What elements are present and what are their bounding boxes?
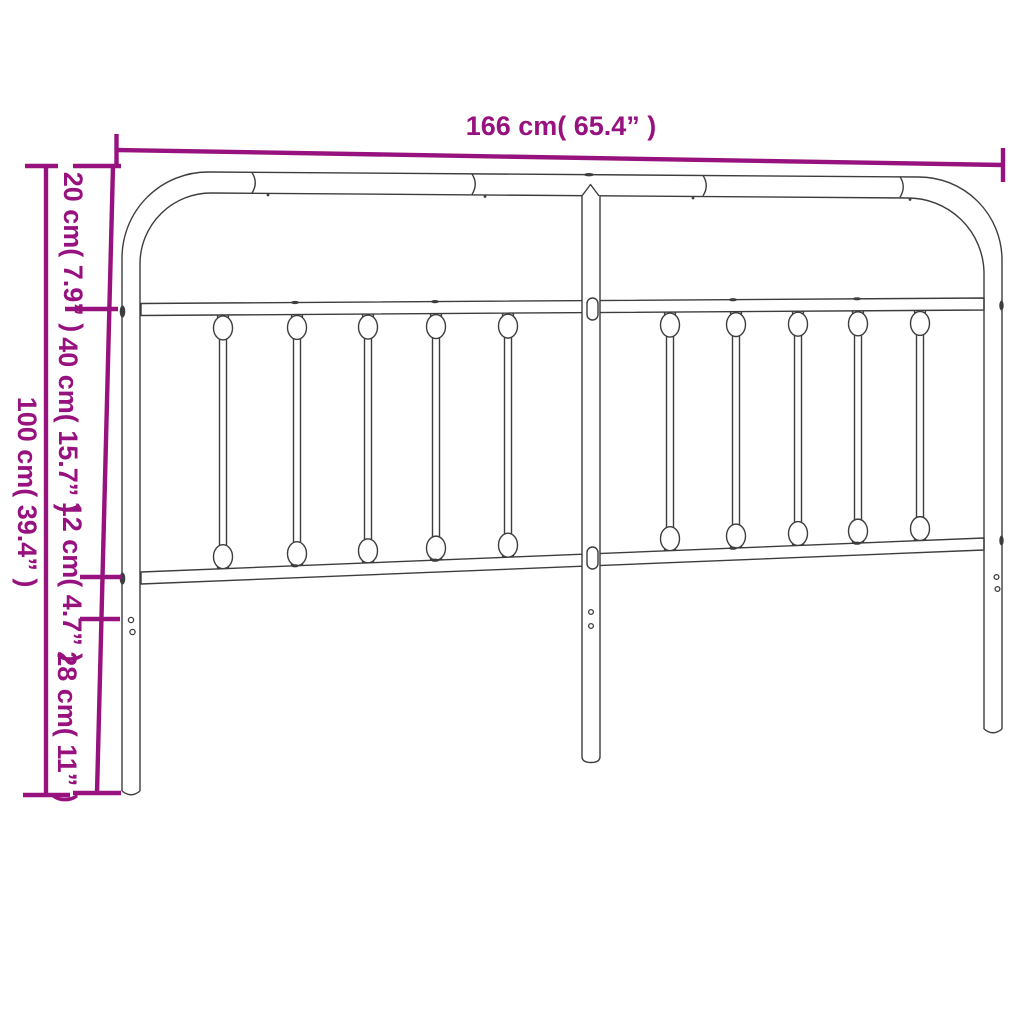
tube-joint-arc	[472, 174, 475, 194]
segment-label-40cm: 40 cm( 15.7” )	[53, 337, 83, 513]
baluster-part	[220, 338, 227, 547]
tube-dot	[484, 195, 487, 198]
baluster-part	[294, 337, 301, 543]
tube-joint-arc	[900, 177, 903, 197]
frame-bolt	[999, 536, 1003, 546]
frame-bolt	[120, 306, 126, 318]
baluster-part	[789, 312, 808, 336]
baluster-part	[427, 536, 446, 560]
baluster-part	[727, 524, 746, 548]
baluster-group	[214, 309, 930, 570]
baluster-part	[505, 336, 512, 535]
tube-joint-arc	[252, 173, 255, 193]
baluster-part	[359, 539, 378, 563]
baluster-part	[499, 533, 518, 557]
baluster-part	[911, 311, 930, 335]
baluster-part	[359, 315, 378, 339]
rail-joint-mark	[853, 542, 861, 545]
rail-joint-mark	[431, 559, 439, 562]
baluster-part	[667, 335, 674, 529]
tube-top-joint-mark	[584, 173, 594, 176]
rail-joint-mark	[291, 564, 299, 567]
tube-dot	[909, 198, 912, 201]
center-post-peak	[582, 185, 600, 197]
baluster-part	[661, 527, 680, 551]
segment-label-20cm: 20 cm( 7.9” )	[58, 172, 88, 333]
baluster-part	[733, 335, 740, 526]
baluster-part	[433, 337, 440, 539]
baluster-part	[789, 522, 808, 546]
baluster-part	[214, 545, 233, 569]
baluster-part	[288, 315, 307, 339]
tube-dot	[267, 194, 270, 197]
baluster-part	[288, 542, 307, 566]
baluster-part	[849, 519, 868, 543]
baluster-part	[849, 312, 868, 336]
frame-outer-edge	[122, 172, 1002, 791]
baluster-part	[499, 314, 518, 338]
segment-line	[97, 166, 113, 793]
screw-hole	[995, 587, 1000, 592]
post-lower-slot	[587, 547, 598, 569]
headboard-drawing	[120, 172, 1004, 795]
right-leg-bottom-cap	[984, 729, 1002, 733]
segment-height-dimension: 20 cm( 7.9” ) 40 cm( 15.7” ) 12 cm( 4.7”…	[52, 166, 122, 803]
baluster-part	[917, 333, 924, 518]
baluster-part	[795, 334, 802, 523]
frame-bolt	[999, 301, 1003, 311]
center-post	[582, 196, 600, 763]
width-label: 166 cm( 65.4” )	[466, 111, 657, 141]
baluster-part	[214, 316, 233, 340]
left-leg-bottom-cap	[122, 791, 140, 795]
rail-joint-mark	[853, 297, 861, 300]
lower-rail	[141, 538, 984, 584]
width-dimension: 166 cm( 65.4” )	[116, 111, 1003, 182]
baluster-part	[365, 337, 372, 541]
total-height-label: 100 cm( 39.4” )	[12, 397, 42, 588]
rail-joint-mark	[729, 547, 737, 550]
baluster-part	[661, 313, 680, 337]
screw-hole	[589, 624, 594, 629]
tube-joint-arc	[703, 176, 706, 196]
screw-hole	[589, 610, 594, 615]
dimension-diagram-page: 166 cm( 65.4” ) 100 cm( 39.4” ) 20 cm( 7…	[0, 0, 1024, 1024]
baluster-part	[855, 334, 862, 521]
rail-joint-mark	[729, 298, 737, 301]
segment-label-12cm: 12 cm( 4.7” )	[57, 502, 87, 663]
rail-joint-mark	[431, 300, 439, 303]
baluster-part	[911, 517, 930, 541]
screw-hole	[128, 617, 133, 622]
baluster-part	[427, 315, 446, 339]
screw-hole	[130, 629, 135, 634]
rail-joint-mark	[291, 301, 299, 304]
width-dimension-line	[116, 150, 1003, 165]
headboard-dimension-diagram: 166 cm( 65.4” ) 100 cm( 39.4” ) 20 cm( 7…	[0, 0, 1024, 1024]
tube-dot	[692, 197, 695, 200]
screw-hole	[994, 575, 999, 580]
baluster-part	[727, 313, 746, 337]
segment-label-28cm: 28 cm( 11” )	[52, 651, 82, 803]
post-upper-slot	[587, 298, 598, 320]
